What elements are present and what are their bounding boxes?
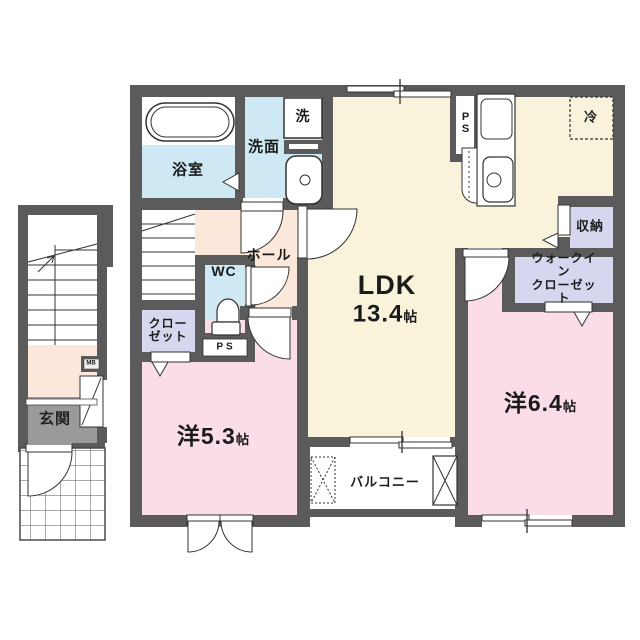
wall-segment: [130, 300, 205, 310]
entrance-step: [26, 399, 97, 405]
label-washer: 洗: [296, 109, 311, 125]
window-pane: [350, 437, 403, 443]
room-label-balcony: バルコニー: [350, 476, 420, 491]
window-pane: [394, 91, 451, 97]
wall-segment: [130, 97, 142, 527]
washroom-counter: [289, 144, 318, 149]
room-label-west-5-3: 洋5.3帖: [177, 424, 249, 450]
kitchen-stove-icon: [481, 99, 512, 139]
room-label-entrance: 玄関: [39, 412, 71, 429]
room-label-walk-in-closet: ウォークイン クローゼット: [526, 252, 602, 306]
floor-plan-drawing: [0, 0, 640, 640]
label-pipe-space-wc: PS: [216, 341, 235, 352]
label-pipe-space-kitchen: PS: [460, 111, 471, 135]
toilet-icon: [217, 299, 239, 322]
wall-segment: [558, 237, 570, 248]
wall-segment: [450, 437, 468, 447]
room-label-wc: WC: [211, 264, 236, 280]
french-door-swing: [188, 521, 219, 552]
wall-segment: [130, 515, 187, 527]
wall-segment: [297, 437, 350, 447]
room-size-unit: 帖: [563, 399, 576, 414]
window-pane: [525, 520, 572, 526]
wall-segment-stairblock: [18, 205, 107, 215]
bedroom2-door-leaf: [463, 249, 508, 257]
room-size-value: 13.4: [353, 301, 404, 328]
wall-segment: [130, 198, 243, 210]
room-label-storage: 収納: [576, 220, 604, 235]
room-size-unit: 帖: [403, 309, 417, 325]
room-size-value: 洋5.3: [177, 423, 236, 449]
room-size-ldk: 13.4帖: [353, 302, 418, 329]
room-size-unit: 帖: [236, 432, 249, 447]
room-label-washroom: 洗面: [248, 140, 280, 157]
room-size-value: 洋6.4: [504, 390, 563, 416]
wall-segment: [322, 85, 333, 210]
room-label-west-6-4: 洋6.4帖: [504, 391, 576, 417]
wall-segment: [292, 306, 308, 320]
closet-door-leaf: [151, 352, 190, 362]
indoor-stairs-breakline: [142, 214, 195, 231]
wall-segment-stairblock: [97, 427, 107, 443]
french-door-swing: [221, 521, 252, 552]
entrance-door-leaf: [26, 444, 72, 452]
room-label-hall: ホール: [247, 248, 292, 264]
wall-segment-balcony: [302, 509, 462, 517]
room-label-closet: クロー ゼット: [148, 318, 187, 345]
label-refrigerator: 冷: [584, 111, 598, 126]
window-pane: [482, 515, 529, 521]
wall-segment-stairblock: [18, 205, 28, 450]
room-label-bathroom: 浴室: [172, 163, 204, 180]
wall-segment-stairblock: [105, 205, 113, 267]
ldk-door-leaf: [298, 206, 307, 258]
indoor-stairs-steps: [142, 224, 195, 294]
wall-segment: [572, 515, 625, 527]
wall-segment: [130, 352, 152, 362]
room-label-ldk: LDK: [358, 270, 417, 300]
window-pane: [399, 442, 452, 448]
wall-segment-balcony: [302, 447, 310, 517]
kitchen-faucet-icon: [487, 173, 501, 187]
floor-plan: LDK 13.4帖 洋5.3帖 洋6.4帖 浴室 洗面 洗 WC ホール クロー…: [0, 0, 640, 640]
washroom-door-leaf: [241, 202, 283, 211]
washbasin-icon: [286, 156, 322, 204]
toilet-icon: [212, 322, 240, 335]
bedroom1-door-leaf: [249, 308, 291, 317]
storage-door-leaf: [558, 205, 570, 235]
label-meter-box: MB: [86, 361, 95, 368]
